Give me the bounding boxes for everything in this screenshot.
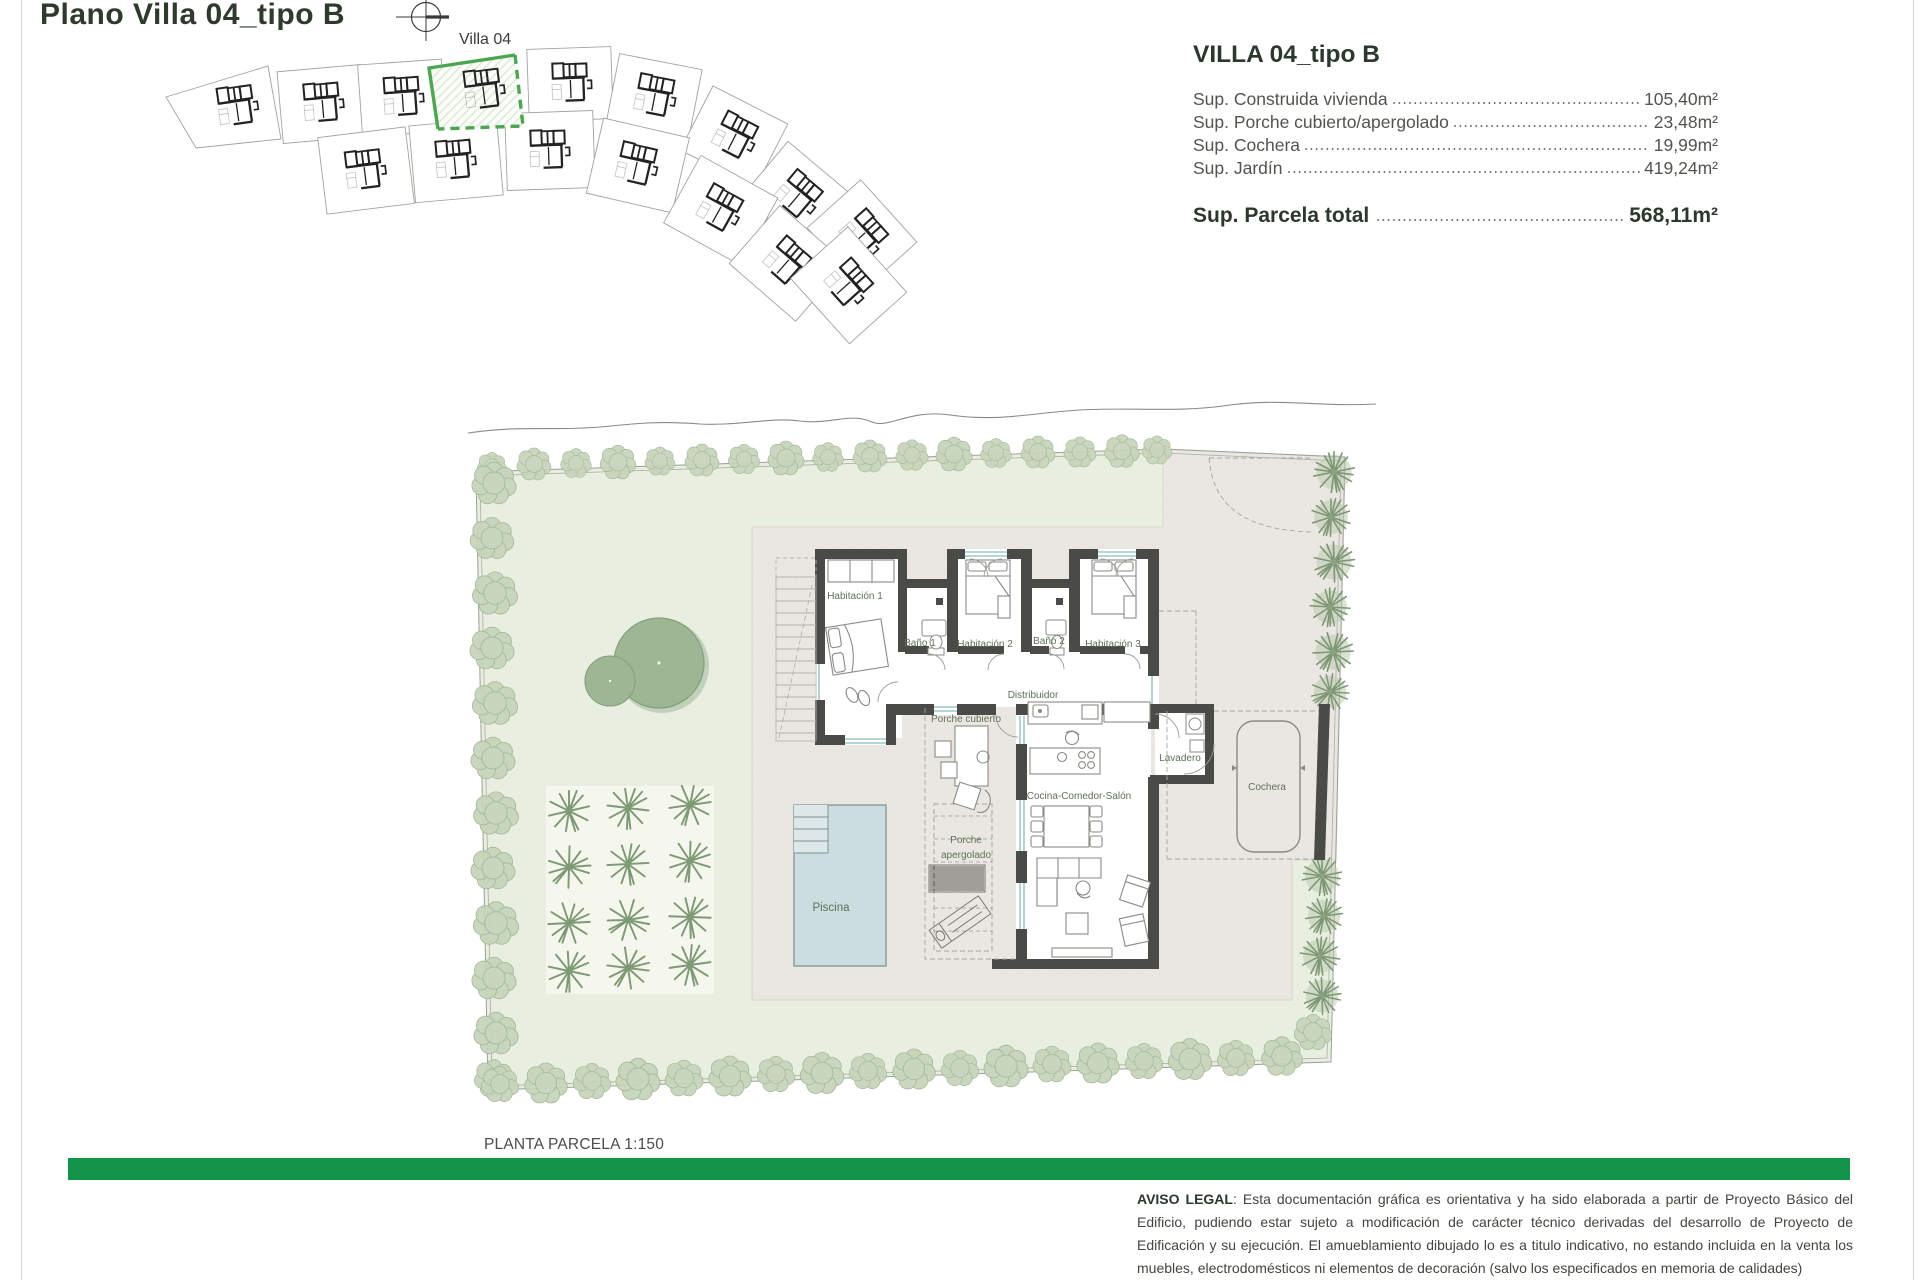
svg-text:Villa 04: Villa 04 (459, 31, 511, 48)
svg-text:Sup. Jardín: Sup. Jardín (1193, 158, 1283, 178)
svg-text:Piscina: Piscina (812, 902, 850, 914)
svg-text:Distribuidor: Distribuidor (1008, 690, 1059, 701)
svg-text:VILLA 04_tipo B: VILLA 04_tipo B (1193, 41, 1380, 68)
svg-text:Cocina-Comedor-Salón: Cocina-Comedor-Salón (1027, 791, 1132, 802)
svg-text:Baño 2: Baño 2 (1033, 636, 1065, 647)
svg-text:568,11m²: 568,11m² (1629, 204, 1718, 227)
svg-text:19,99m²: 19,99m² (1654, 135, 1718, 155)
svg-text:Lavadero: Lavadero (1159, 753, 1201, 764)
svg-text:Porche cubierto: Porche cubierto (931, 714, 1001, 725)
svg-text:Porche: Porche (950, 835, 982, 846)
svg-text:Habitación 2: Habitación 2 (957, 639, 1013, 650)
svg-text:Habitación 1: Habitación 1 (827, 591, 883, 602)
svg-text:Baño 1: Baño 1 (904, 638, 936, 649)
svg-text:419,24m²: 419,24m² (1644, 158, 1718, 178)
svg-text:Plano Villa 04_tipo B: Plano Villa 04_tipo B (40, 0, 345, 31)
svg-text:Cochera: Cochera (1248, 782, 1286, 793)
svg-text:105,40m²: 105,40m² (1644, 89, 1718, 109)
svg-text:Habitación 3: Habitación 3 (1085, 639, 1141, 650)
svg-text:Sup. Parcela total: Sup. Parcela total (1193, 204, 1369, 227)
svg-text:Sup. Cochera: Sup. Cochera (1193, 135, 1300, 155)
svg-text:Sup. Porche cubierto/apergolad: Sup. Porche cubierto/apergolado (1193, 112, 1449, 132)
svg-text:Sup. Construida vivienda: Sup. Construida vivienda (1193, 89, 1388, 109)
svg-text:PLANTA PARCELA 1:150: PLANTA PARCELA 1:150 (484, 1136, 664, 1153)
svg-text:23,48m²: 23,48m² (1654, 112, 1718, 132)
svg-text:apergolado: apergolado (941, 850, 991, 861)
